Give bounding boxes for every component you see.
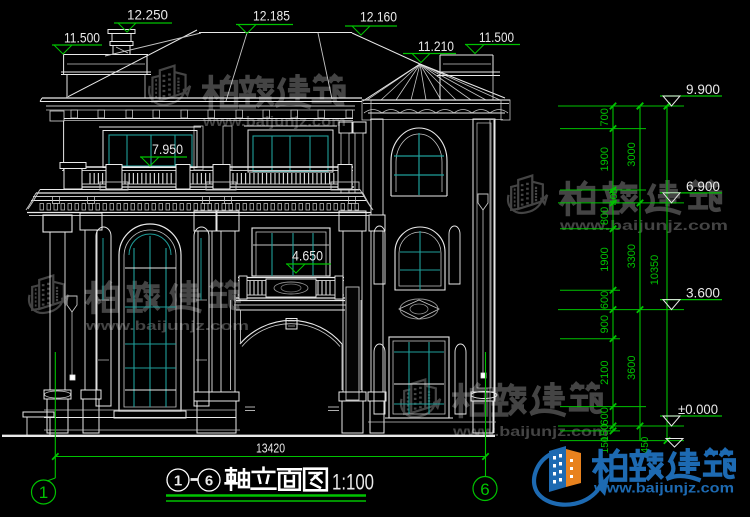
svg-text:1: 1 [174,473,182,490]
svg-text:1900: 1900 [599,247,611,271]
svg-text:11.500: 11.500 [479,30,514,45]
svg-text:10350: 10350 [649,255,661,286]
svg-text:6.900: 6.900 [686,179,720,194]
svg-text:11.500: 11.500 [64,31,100,46]
svg-text:www.baijunjz.com: www.baijunjz.com [593,481,734,496]
svg-text:6: 6 [205,473,213,490]
svg-text:www.baijunjz.com: www.baijunjz.com [559,218,728,233]
svg-text:12.185: 12.185 [253,9,290,24]
svg-text:11.210: 11.210 [418,39,454,54]
svg-text:800: 800 [599,207,611,225]
svg-text:±0.000: ±0.000 [678,402,718,417]
svg-text:3600: 3600 [626,356,638,380]
svg-text:3300: 3300 [626,244,638,268]
svg-text:12.250: 12.250 [127,8,168,23]
svg-text:700: 700 [599,108,611,126]
svg-text:1:100: 1:100 [332,470,374,495]
svg-text:600: 600 [599,291,611,309]
svg-text:4.650: 4.650 [292,249,323,264]
svg-text:900: 900 [599,315,611,333]
svg-text:3000: 3000 [626,142,638,166]
svg-text:1: 1 [39,483,48,502]
svg-text:6: 6 [480,480,489,499]
svg-text:2100: 2100 [599,360,611,384]
svg-text:9.900: 9.900 [686,82,720,97]
svg-text:www.baijunjz.com: www.baijunjz.com [85,318,249,333]
svg-text:12.160: 12.160 [360,10,397,25]
svg-text:1900: 1900 [599,147,611,171]
svg-text:7.950: 7.950 [152,142,183,157]
svg-text:13420: 13420 [256,441,285,456]
svg-text:3.600: 3.600 [686,286,720,301]
svg-text:600: 600 [599,407,611,425]
svg-text:400: 400 [608,188,620,206]
